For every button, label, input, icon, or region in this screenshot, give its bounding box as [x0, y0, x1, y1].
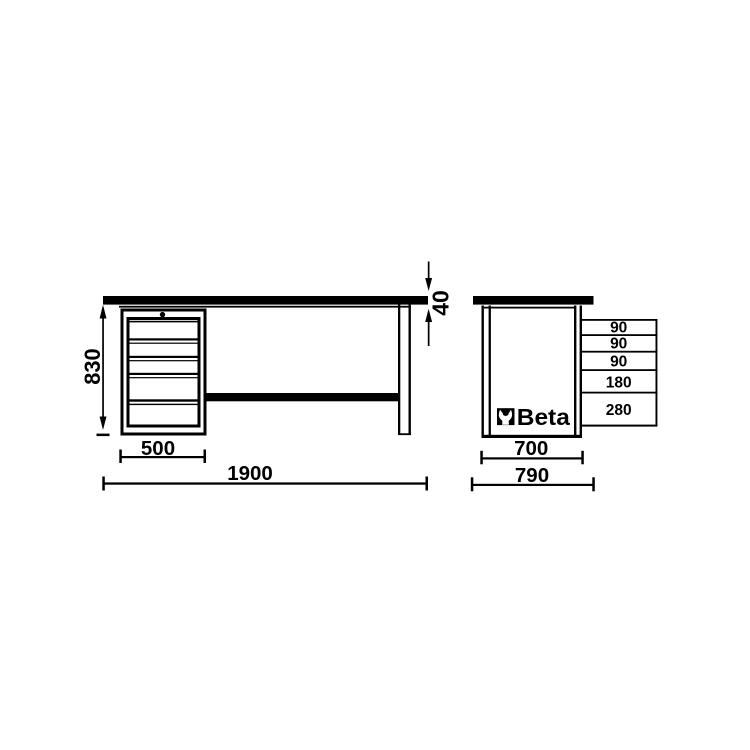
svg-text:90: 90 [610, 336, 627, 353]
svg-text:790: 790 [515, 464, 549, 487]
svg-text:180: 180 [606, 374, 632, 391]
svg-text:40: 40 [428, 290, 454, 316]
svg-text:280: 280 [606, 402, 632, 419]
svg-text:Beta: Beta [517, 404, 571, 430]
svg-text:90: 90 [610, 354, 627, 371]
svg-text:700: 700 [514, 437, 548, 460]
svg-text:500: 500 [141, 437, 175, 460]
svg-text:90: 90 [610, 319, 627, 336]
svg-text:830: 830 [80, 348, 105, 384]
svg-text:1900: 1900 [227, 462, 273, 485]
